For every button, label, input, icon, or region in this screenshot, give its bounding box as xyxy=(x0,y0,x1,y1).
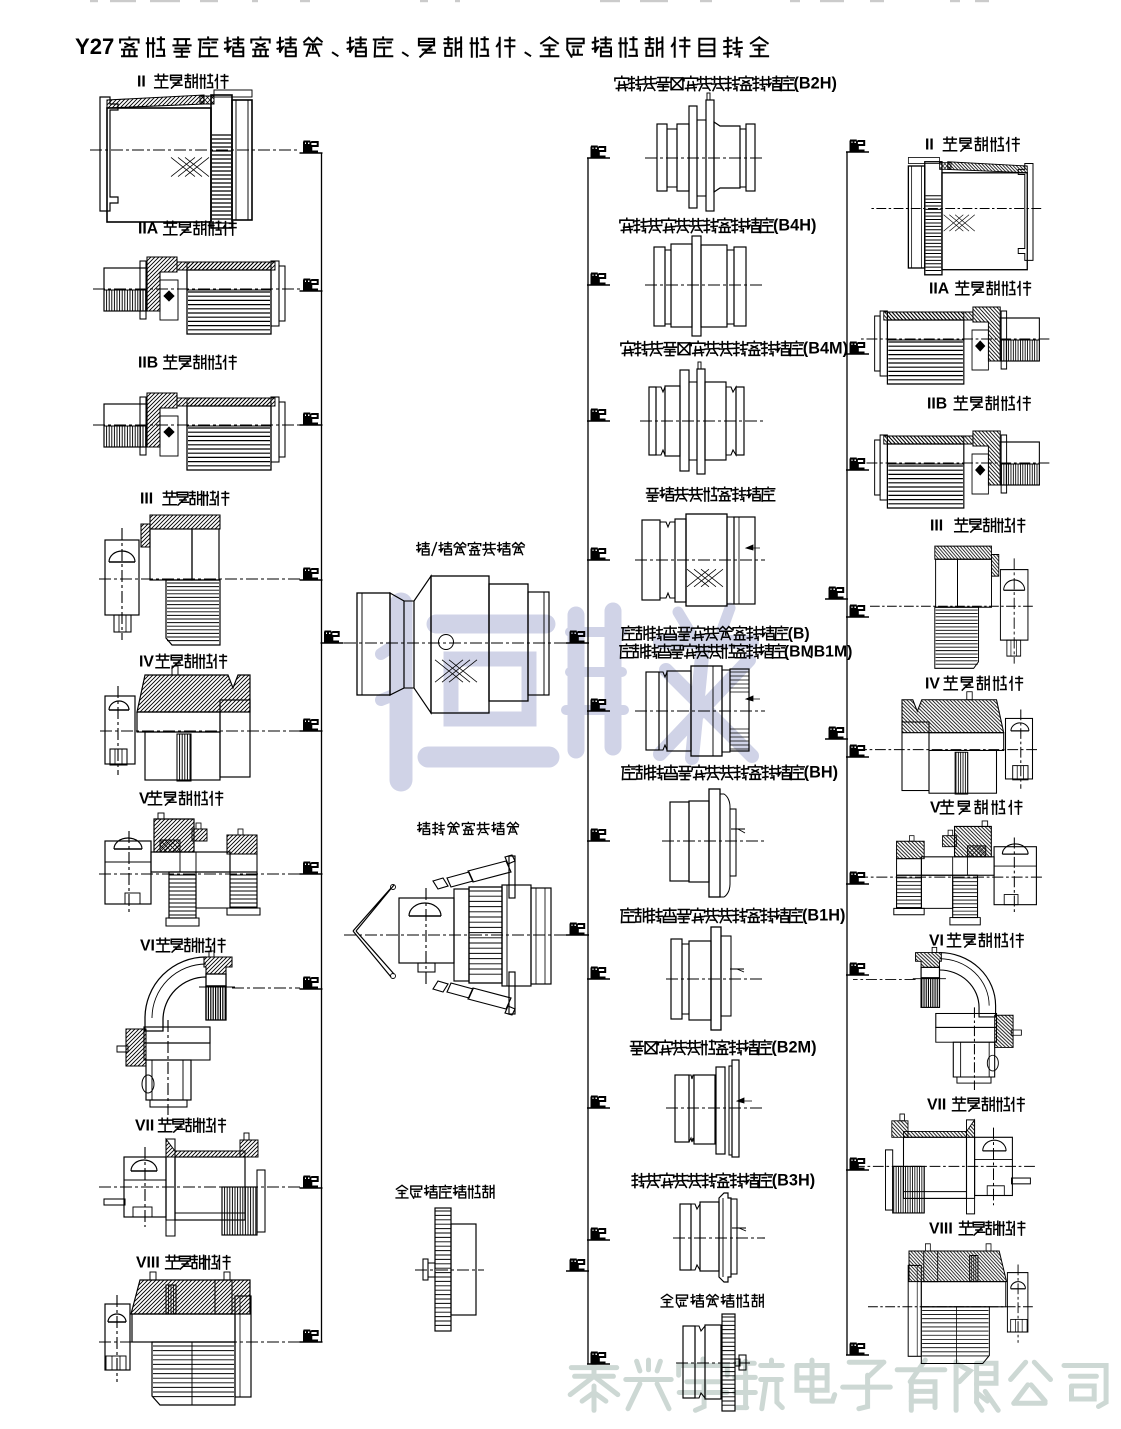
svg-text:VII: VII xyxy=(135,1117,154,1134)
svg-text:VIII: VIII xyxy=(136,1254,160,1271)
svg-text:IIA: IIA xyxy=(138,220,158,237)
svg-text:III: III xyxy=(930,517,943,534)
svg-text:VI: VI xyxy=(929,932,944,949)
svg-text:III: III xyxy=(140,490,153,507)
svg-text:II: II xyxy=(137,73,146,90)
svg-text:IIB: IIB xyxy=(138,354,158,371)
svg-text:II: II xyxy=(925,136,934,153)
svg-text:(BH): (BH) xyxy=(804,764,838,782)
svg-text:IV: IV xyxy=(925,675,940,692)
svg-text:IV: IV xyxy=(139,653,154,670)
svg-text:(B3H): (B3H) xyxy=(772,1172,815,1190)
svg-text:IIB: IIB xyxy=(927,395,947,412)
svg-text:(B4M): (B4M) xyxy=(803,340,848,358)
svg-text:Y27: Y27 xyxy=(75,34,114,59)
svg-text:(B4H): (B4H) xyxy=(773,217,816,235)
svg-text:(B2H): (B2H) xyxy=(793,75,836,93)
svg-text:(B1H): (B1H) xyxy=(802,907,845,925)
svg-text:(B2M): (B2M) xyxy=(771,1039,816,1057)
svg-text:V: V xyxy=(139,790,150,807)
svg-text:(B): (B) xyxy=(788,625,810,642)
svg-text:VIII: VIII xyxy=(929,1220,953,1237)
svg-text:V: V xyxy=(930,799,941,816)
svg-text:VI: VI xyxy=(140,937,155,954)
svg-text:(BMB1M): (BMB1M) xyxy=(784,643,852,660)
svg-text:IIA: IIA xyxy=(929,280,949,297)
svg-text:VII: VII xyxy=(927,1096,946,1113)
